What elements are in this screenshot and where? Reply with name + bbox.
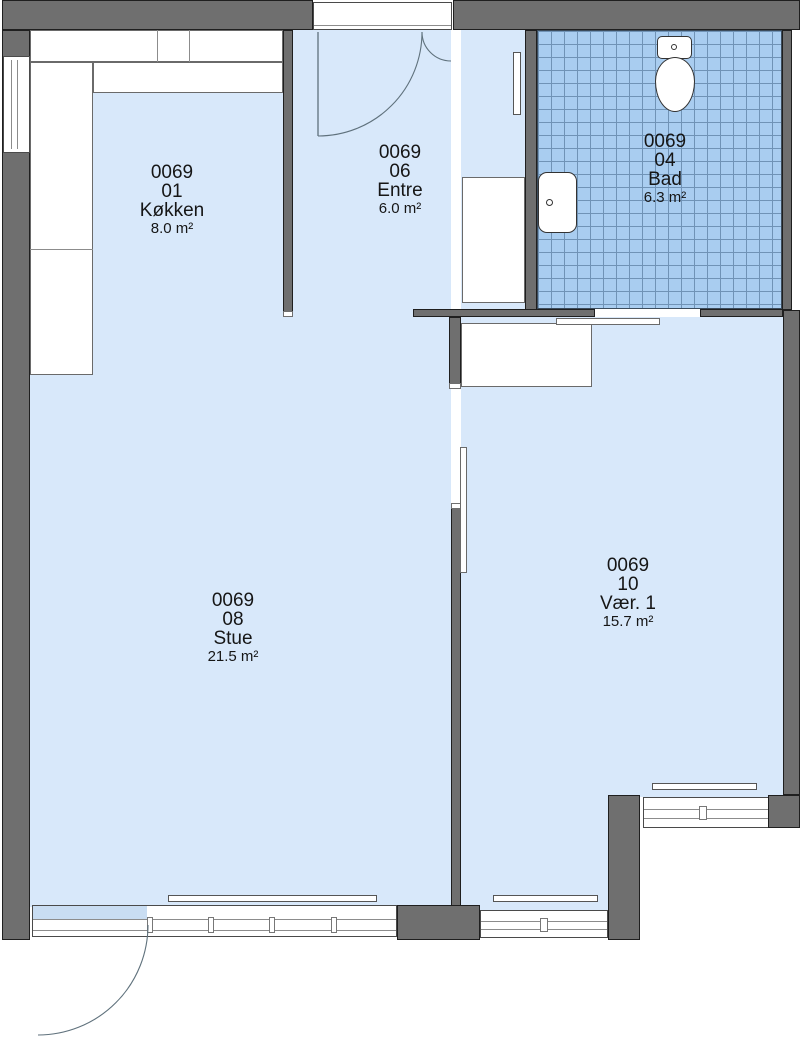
room-code: 0069 — [377, 143, 422, 162]
room-unit: 08 — [208, 610, 259, 629]
wardrobe-vaer — [461, 323, 592, 387]
sink-basin — [538, 172, 577, 233]
floor-plan: 0069 01 Køkken 8.0 m² 0069 06 Entre 6.0 … — [0, 0, 800, 1043]
balcony-door-swing-arc — [38, 925, 148, 1035]
radiator-vaer-south — [493, 895, 598, 902]
room-area: 8.0 m² — [140, 220, 204, 237]
wall-cap-kitchen — [283, 311, 293, 317]
room-area: 21.5 m² — [208, 648, 259, 665]
room-area: 6.3 m² — [644, 189, 687, 206]
wall-kitchen-right — [283, 30, 293, 314]
window-mullion — [147, 917, 153, 933]
room-area: 15.7 m² — [600, 613, 656, 630]
window-stue-glazing-line — [33, 930, 396, 931]
wardrobe-entre — [462, 177, 525, 303]
window-mullion — [331, 917, 337, 933]
sliding-door-vaer — [460, 447, 467, 573]
room-label-stue: 0069 08 Stue 21.5 m² — [208, 591, 259, 665]
window-mullion — [269, 917, 275, 933]
room-name: Stue — [208, 629, 259, 648]
room-unit: 10 — [600, 575, 656, 594]
room-unit: 06 — [377, 162, 422, 181]
room-name: Bad — [644, 170, 687, 189]
radiator-stue — [168, 895, 377, 902]
window-mullion — [540, 918, 548, 932]
wall-bath-bottom-right — [700, 309, 783, 317]
room-name: Entre — [377, 181, 422, 200]
room-code: 0069 — [140, 163, 204, 182]
kitchen-cabinet-divider — [189, 30, 190, 62]
sink-drain-icon — [546, 199, 553, 206]
window-kitchen-frame-line — [11, 60, 12, 149]
wall-stub-stue-window — [397, 905, 480, 940]
wall-bath-bottom-left — [413, 309, 595, 317]
balcony-door-glass — [33, 906, 147, 919]
wall-stub-vaer-door — [449, 317, 461, 386]
radiator-entre — [513, 52, 521, 115]
room-label-kokken: 0069 01 Køkken 8.0 m² — [140, 163, 204, 237]
toilet-flush-button-icon — [671, 44, 677, 50]
wall-right-bottom — [768, 795, 800, 828]
wall-left — [2, 30, 30, 940]
room-label-vaer1: 0069 10 Vær. 1 15.7 m² — [600, 556, 656, 630]
kitchen-counter-left — [30, 62, 93, 375]
room-name: Køkken — [140, 201, 204, 220]
wall-cap-stub — [449, 383, 461, 389]
room-label-entre: 0069 06 Entre 6.0 m² — [377, 143, 422, 217]
window-mullion — [699, 806, 707, 820]
room-code: 0069 — [208, 591, 259, 610]
wall-right-upper — [782, 30, 792, 310]
room-name: Vær. 1 — [600, 594, 656, 613]
window-stue-glazing-line — [33, 919, 396, 920]
kitchen-cabinet-divider — [157, 30, 158, 62]
wall-top-left — [2, 0, 313, 30]
room-label-bad: 0069 04 Bad 6.3 m² — [644, 132, 687, 206]
room-unit: 01 — [140, 182, 204, 201]
wall-top-right — [453, 0, 800, 30]
room-unit: 04 — [644, 151, 687, 170]
radiator-vaer-east — [652, 783, 757, 790]
room-code: 0069 — [644, 132, 687, 151]
sliding-door-bad — [556, 318, 660, 325]
window-mullion — [208, 917, 214, 933]
room-code: 0069 — [600, 556, 656, 575]
entrance-threshold-line — [314, 25, 451, 26]
kitchen-counter-divider — [30, 249, 93, 250]
room-area: 6.0 m² — [377, 200, 422, 217]
wall-entre-bath — [525, 30, 537, 317]
wall-corner-block — [608, 795, 640, 940]
kitchen-counter-front — [93, 62, 283, 93]
room-fill-vaer1-south — [461, 797, 608, 910]
wall-right-mid — [783, 310, 800, 795]
window-kitchen-frame-line — [17, 60, 18, 149]
